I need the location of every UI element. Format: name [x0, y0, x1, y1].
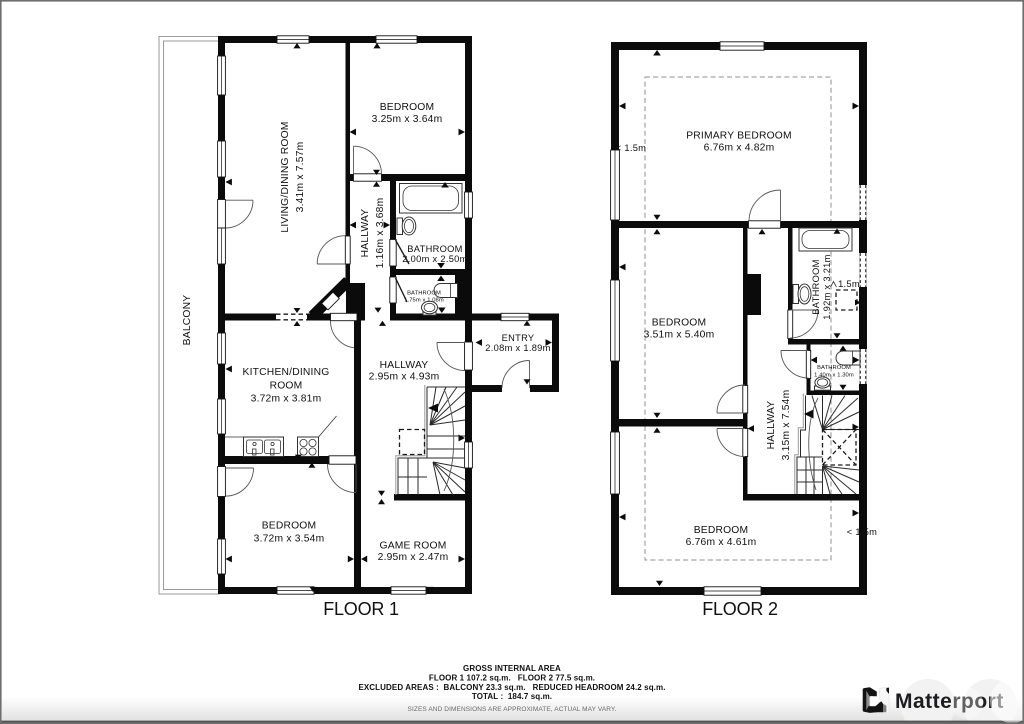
svg-text:GAME ROOM: GAME ROOM	[379, 541, 446, 552]
svg-text:2.95m x 2.47m: 2.95m x 2.47m	[378, 552, 449, 563]
svg-text:BATHROOM: BATHROOM	[817, 365, 851, 371]
svg-text:3.41m x 7.57m: 3.41m x 7.57m	[295, 142, 306, 213]
svg-text:FLOOR 1: FLOOR 1	[323, 599, 399, 619]
svg-text:3.72m x 3.54m: 3.72m x 3.54m	[254, 534, 325, 545]
svg-text:2.08m x 1.89m: 2.08m x 1.89m	[485, 343, 550, 353]
svg-text:1.16m x 3.68m: 1.16m x 3.68m	[375, 198, 386, 269]
svg-text:2.00m x 2.50m: 2.00m x 2.50m	[402, 254, 467, 264]
svg-text:KITCHEN/DINING: KITCHEN/DINING	[243, 367, 330, 378]
svg-text:BALCONY: BALCONY	[182, 295, 193, 346]
svg-text:3.15m x 7.54m: 3.15m x 7.54m	[781, 390, 792, 461]
svg-text:TOTAL : 184.7 sq.m.: TOTAL : 184.7 sq.m.	[472, 692, 552, 701]
svg-text:3.72m x 3.81m: 3.72m x 3.81m	[251, 394, 322, 405]
svg-text:1.75m x 1.08m: 1.75m x 1.08m	[404, 298, 444, 304]
svg-text:BEDROOM: BEDROOM	[694, 525, 749, 536]
svg-text:6.76m x 4.61m: 6.76m x 4.61m	[686, 537, 757, 548]
svg-text:FLOOR 1 107.2 sq.m. FLOOR 2: FLOOR 1 107.2 sq.m. FLOOR 2 77.5 sq.m.	[429, 674, 595, 683]
svg-text:BATHROOM: BATHROOM	[407, 291, 441, 297]
svg-text:SIZES AND DIMENSIONS ARE APPRO: SIZES AND DIMENSIONS ARE APPROXIMATE, AC…	[408, 706, 617, 713]
svg-text:BATHROOM: BATHROOM	[407, 244, 462, 254]
svg-text:EXCLUDED AREAS : BALCONY 23.3: EXCLUDED AREAS : BALCONY 23.3 sq.m. REDU…	[358, 683, 665, 692]
svg-text:3.25m x 3.64m: 3.25m x 3.64m	[372, 114, 443, 125]
svg-text:< 1.5m: < 1.5m	[847, 527, 877, 537]
svg-text:6.76m x 4.82m: 6.76m x 4.82m	[704, 143, 775, 154]
svg-text:Matterport: Matterport	[895, 690, 1004, 713]
svg-text:BATHROOM: BATHROOM	[811, 259, 821, 314]
svg-text:FLOOR 2: FLOOR 2	[702, 599, 778, 619]
svg-text:PRIMARY BEDROOM: PRIMARY BEDROOM	[686, 131, 792, 142]
svg-text:GROSS INTERNAL AREA: GROSS INTERNAL AREA	[463, 664, 561, 673]
svg-text:LIVING/DINING ROOM: LIVING/DINING ROOM	[280, 121, 291, 232]
svg-text:BEDROOM: BEDROOM	[652, 318, 707, 329]
svg-text:HALLWAY: HALLWAY	[766, 401, 777, 450]
svg-text:1.5m: 1.5m	[838, 279, 860, 289]
svg-text:< 1.5m: < 1.5m	[616, 143, 646, 153]
svg-text:BEDROOM: BEDROOM	[380, 102, 435, 113]
svg-text:2.95m x 4.93m: 2.95m x 4.93m	[369, 372, 440, 383]
svg-text:3.51m x 5.40m: 3.51m x 5.40m	[644, 330, 715, 341]
svg-text:HALLWAY: HALLWAY	[360, 209, 371, 258]
svg-text:ROOM: ROOM	[270, 381, 303, 392]
svg-text:ENTRY: ENTRY	[502, 333, 535, 343]
svg-text:HALLWAY: HALLWAY	[380, 360, 429, 371]
svg-text:1.40m x 1.30m: 1.40m x 1.30m	[814, 373, 854, 379]
svg-text:BEDROOM: BEDROOM	[262, 521, 317, 532]
